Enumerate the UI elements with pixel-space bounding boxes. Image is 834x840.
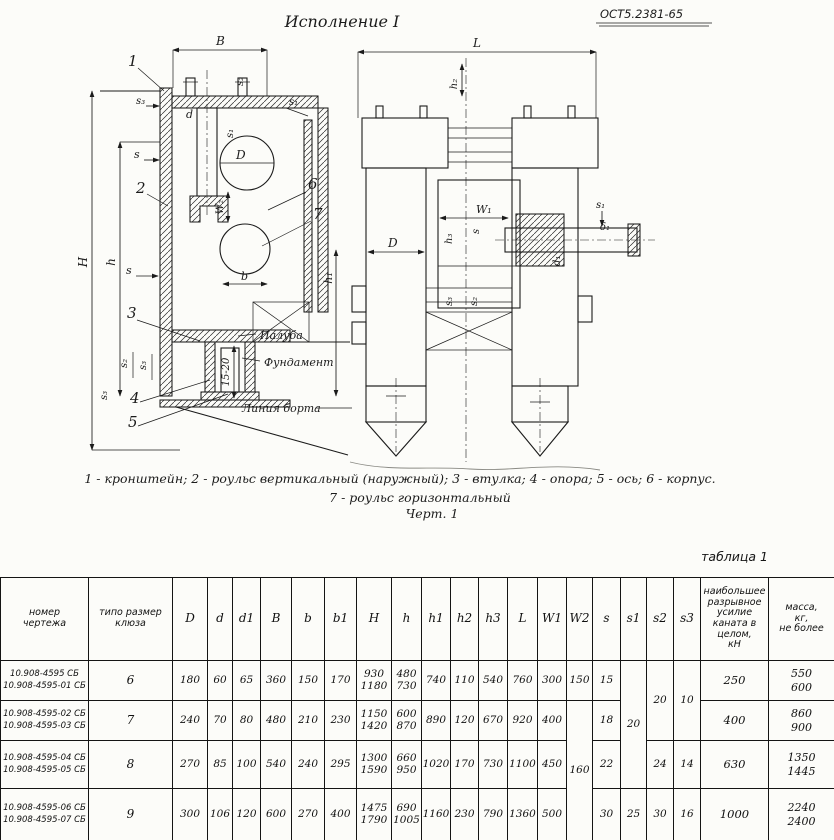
- dim-label-s3: s₃: [136, 96, 145, 107]
- dimension-table: номер чертежа типо размер клюза D d d1 B…: [0, 577, 834, 840]
- header-D: D: [173, 578, 208, 661]
- dim-label-h1: h₁: [322, 272, 335, 284]
- cell-s2: 30: [647, 789, 674, 840]
- cell-H: 1475 1790: [357, 789, 392, 840]
- left-view: B H h h₁ W₂ b D d s s s₃ s₂: [76, 34, 352, 455]
- cell-s: 15: [593, 661, 621, 701]
- standard-number: ОСТ5.2381-65: [600, 7, 683, 21]
- cell-W1: 500: [538, 789, 567, 840]
- cell-s: 30: [593, 789, 621, 840]
- header-tiporazmer: типо размер клюза: [89, 578, 173, 661]
- cell-nomer: 10.908-4595-04 СБ 10.908-4595-05 СБ: [1, 741, 89, 789]
- dim-label-b: b: [241, 270, 248, 283]
- cell-W1: 400: [538, 701, 567, 741]
- cell-h: 480 730: [392, 661, 422, 701]
- cell-h3: 790: [479, 789, 508, 840]
- cell-D: 270: [173, 741, 208, 789]
- dim-label-s2: s₂: [469, 297, 480, 306]
- cell-size: 7: [89, 701, 173, 741]
- cell-s: 22: [593, 741, 621, 789]
- table-row: 10.908-4595-06 СБ 10.908-4595-07 СБ 9 30…: [1, 789, 834, 840]
- cell-L: 1360: [508, 789, 538, 840]
- header-d: d: [208, 578, 233, 661]
- dim-label-s3: s₃: [99, 391, 110, 400]
- cell-d: 60: [208, 661, 233, 701]
- cell-H: 930 1180: [357, 661, 392, 701]
- cell-W1: 450: [538, 741, 567, 789]
- header-H: H: [357, 578, 392, 661]
- header-W2: W2: [567, 578, 593, 661]
- cell-h1: 1160: [422, 789, 451, 840]
- dim-label-s1: s₁: [596, 200, 605, 211]
- cell-b: 210: [292, 701, 325, 741]
- cell-b: 240: [292, 741, 325, 789]
- cell-mass: 2240 2400: [769, 789, 834, 840]
- cell-b: 150: [292, 661, 325, 701]
- dim-label-d1: d₁: [552, 256, 563, 266]
- header-nomer: номер чертежа: [1, 578, 89, 661]
- cell-s2: 24: [647, 741, 674, 789]
- cell-b1: 230: [325, 701, 357, 741]
- technical-drawing: Исполнение I ОСТ5.2381-65: [0, 0, 834, 540]
- header-h2: h2: [451, 578, 479, 661]
- dim-label-s3: s₃: [138, 361, 149, 370]
- dim-label-s: s: [134, 148, 140, 161]
- cell-D: 300: [173, 789, 208, 840]
- hull-line-label: Линия борта: [241, 402, 321, 415]
- cell-h2: 170: [451, 741, 479, 789]
- cell-h3: 730: [479, 741, 508, 789]
- cell-W2-merged: 160: [567, 701, 593, 840]
- cell-s1: 25: [621, 789, 647, 840]
- figure-number: Черт. 1: [406, 506, 459, 521]
- cell-s3: 14: [674, 741, 701, 789]
- cell-B: 540: [261, 741, 292, 789]
- cell-h1: 890: [422, 701, 451, 741]
- callout-1: 1: [128, 52, 138, 70]
- header-d1: d1: [233, 578, 261, 661]
- cell-s: 18: [593, 701, 621, 741]
- cell-b1: 400: [325, 789, 357, 840]
- dim-label-L: L: [472, 36, 481, 50]
- dim-label-s: s: [471, 229, 482, 234]
- header-b: b: [292, 578, 325, 661]
- right-view: L h₂ D W₁ h₃ s: [350, 36, 655, 470]
- cell-L: 760: [508, 661, 538, 701]
- dim-label-D: D: [235, 148, 246, 162]
- cell-force: 250: [701, 661, 769, 701]
- callout-4: 4: [129, 389, 140, 407]
- cell-L: 920: [508, 701, 538, 741]
- callout-5: 5: [128, 413, 138, 431]
- cell-h2: 230: [451, 789, 479, 840]
- header-s1: s1: [621, 578, 647, 661]
- figure-caption: 1 - кронштейн; 2 - роульс вертикальный (…: [84, 471, 715, 521]
- cell-b: 270: [292, 789, 325, 840]
- dim-label-s1: s₁: [289, 97, 298, 108]
- callout-6: 6: [308, 175, 318, 193]
- cell-size: 8: [89, 741, 173, 789]
- callout-7: 7: [313, 205, 323, 223]
- header-B: B: [261, 578, 292, 661]
- cell-H: 1300 1590: [357, 741, 392, 789]
- cell-b1: 170: [325, 661, 357, 701]
- variant-title: Исполнение I: [284, 12, 400, 31]
- cell-d1: 65: [233, 661, 261, 701]
- document-page: Исполнение I ОСТ5.2381-65: [0, 0, 834, 840]
- cell-force: 1000: [701, 789, 769, 840]
- cell-d1: 100: [233, 741, 261, 789]
- header-s2: s2: [647, 578, 674, 661]
- cell-B: 600: [261, 789, 292, 840]
- dim-label-H: H: [76, 256, 90, 268]
- cell-W2: 150: [567, 661, 593, 701]
- cell-B: 360: [261, 661, 292, 701]
- cell-nomer: 10.908-4595 СБ 10.908-4595-01 СБ: [1, 661, 89, 701]
- cell-B: 480: [261, 701, 292, 741]
- header-h1: h1: [422, 578, 451, 661]
- cell-b1: 295: [325, 741, 357, 789]
- header-b1: b1: [325, 578, 357, 661]
- foundation-label: Фундамент: [264, 356, 334, 369]
- cell-h: 600 870: [392, 701, 422, 741]
- cell-nomer: 10.908-4595-06 СБ 10.908-4595-07 СБ: [1, 789, 89, 840]
- cell-size: 9: [89, 789, 173, 840]
- dim-label-s2: s₂: [119, 359, 130, 368]
- caption-line-2: 7 - роульс горизонтальный: [329, 490, 511, 505]
- cell-D: 240: [173, 701, 208, 741]
- callout-2: 2: [135, 179, 146, 197]
- dim-label-B: B: [215, 34, 225, 48]
- dim-label-h3: h₃: [444, 234, 455, 244]
- cell-s3-merged: 10: [674, 661, 701, 741]
- dim-label-d: d: [186, 108, 193, 121]
- cell-d1: 80: [233, 701, 261, 741]
- dim-label-gap: 15-20: [221, 357, 232, 386]
- cell-h2: 110: [451, 661, 479, 701]
- cell-h: 690 1005: [392, 789, 422, 840]
- cell-h3: 540: [479, 661, 508, 701]
- table-row: 10.908-4595-04 СБ 10.908-4595-05 СБ 8 27…: [1, 741, 834, 789]
- cell-size: 6: [89, 661, 173, 701]
- cell-H: 1150 1420: [357, 701, 392, 741]
- dim-label-W2: W₂: [215, 200, 226, 214]
- cell-s3: 16: [674, 789, 701, 840]
- cell-d: 70: [208, 701, 233, 741]
- dim-label-delta1: δ₁: [600, 222, 610, 233]
- dim-label-s1: s₁: [225, 129, 236, 138]
- cell-nomer: 10.908-4595-02 СБ 10.908-4595-03 СБ: [1, 701, 89, 741]
- cell-d1: 120: [233, 789, 261, 840]
- header-row: номер чертежа типо размер клюза D d d1 B…: [1, 578, 834, 661]
- cell-L: 1100: [508, 741, 538, 789]
- cell-d: 106: [208, 789, 233, 840]
- dim-label-W1: W₁: [476, 203, 492, 216]
- cell-mass: 550 600: [769, 661, 834, 701]
- cell-h2: 120: [451, 701, 479, 741]
- dim-label-h: h: [104, 258, 118, 266]
- dim-label-h2: h₂: [449, 79, 460, 89]
- cell-mass: 860 900: [769, 701, 834, 741]
- cell-d: 85: [208, 741, 233, 789]
- header-s3: s3: [674, 578, 701, 661]
- deck-label: Палуба: [259, 329, 303, 342]
- dim-label-D: D: [387, 236, 398, 250]
- header-W1: W1: [538, 578, 567, 661]
- dim-label-s: s: [126, 264, 132, 277]
- caption-line-1: 1 - кронштейн; 2 - роульс вертикальный (…: [84, 471, 715, 486]
- table-row: 10.908-4595 СБ 10.908-4595-01 СБ 6 180 6…: [1, 661, 834, 701]
- cell-h3: 670: [479, 701, 508, 741]
- cell-W1: 300: [538, 661, 567, 701]
- cell-mass: 1350 1445: [769, 741, 834, 789]
- header-L: L: [508, 578, 538, 661]
- dim-label-s3: s₃: [444, 297, 455, 306]
- table-row: 10.908-4595-02 СБ 10.908-4595-03 СБ 7 24…: [1, 701, 834, 741]
- cell-h1: 740: [422, 661, 451, 701]
- header-s: s: [593, 578, 621, 661]
- cell-D: 180: [173, 661, 208, 701]
- header-h: h: [392, 578, 422, 661]
- cell-force: 630: [701, 741, 769, 789]
- header-force: наибольшее разрывное усилие каната в цел…: [701, 578, 769, 661]
- cell-h1: 1020: [422, 741, 451, 789]
- callout-3: 3: [127, 304, 137, 322]
- cell-s2-merged: 20: [647, 661, 674, 741]
- table-caption: таблица 1: [701, 549, 768, 564]
- cell-h: 660 950: [392, 741, 422, 789]
- cell-s1-merged: 20: [621, 661, 647, 789]
- header-h3: h3: [479, 578, 508, 661]
- cell-force: 400: [701, 701, 769, 741]
- header-mass: масса, кг, не более: [769, 578, 834, 661]
- dim-label-s2: s₂: [235, 77, 246, 86]
